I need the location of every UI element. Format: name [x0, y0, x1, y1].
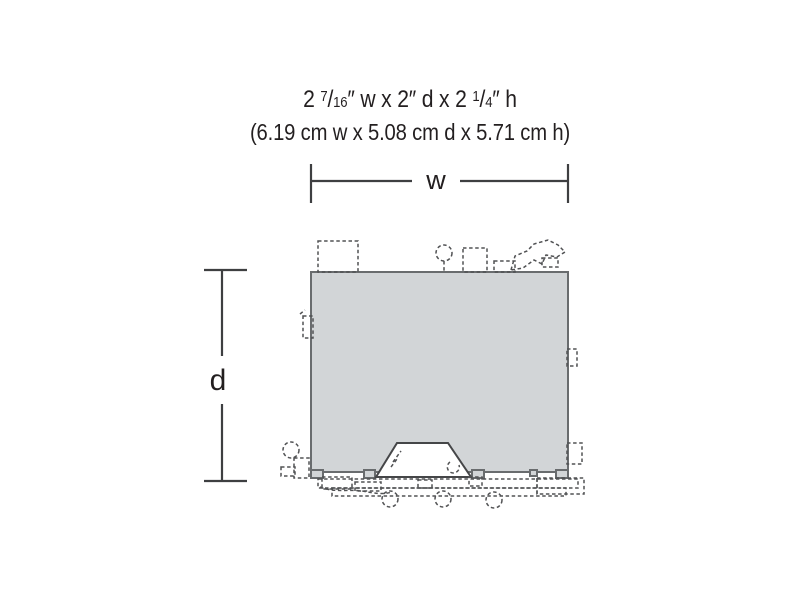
building-footprint — [311, 272, 568, 478]
detail-outline-lean-to — [511, 240, 565, 270]
depth-label: d — [196, 364, 240, 398]
detail-outlines-bottom-left — [281, 442, 309, 478]
detail-outlines-bottom-aprons — [318, 477, 584, 508]
detail-outline-box — [463, 248, 487, 272]
detail-outlines-top-edge — [318, 240, 565, 272]
detail-outline-barrel-1 — [382, 491, 398, 507]
width-label: w — [414, 165, 458, 196]
detail-outline-barrel-3 — [486, 492, 502, 508]
detail-outline-post — [436, 245, 452, 261]
detail-outlines-right-edge — [567, 349, 582, 464]
diagram-page: 2 7/16″ w x 2″ d x 2 1/4″ h (6.19 cm w x… — [0, 0, 800, 600]
detail-outline-chimney — [318, 241, 358, 272]
detail-outline-barrel-2 — [435, 491, 451, 507]
diagram-canvas — [0, 0, 800, 600]
